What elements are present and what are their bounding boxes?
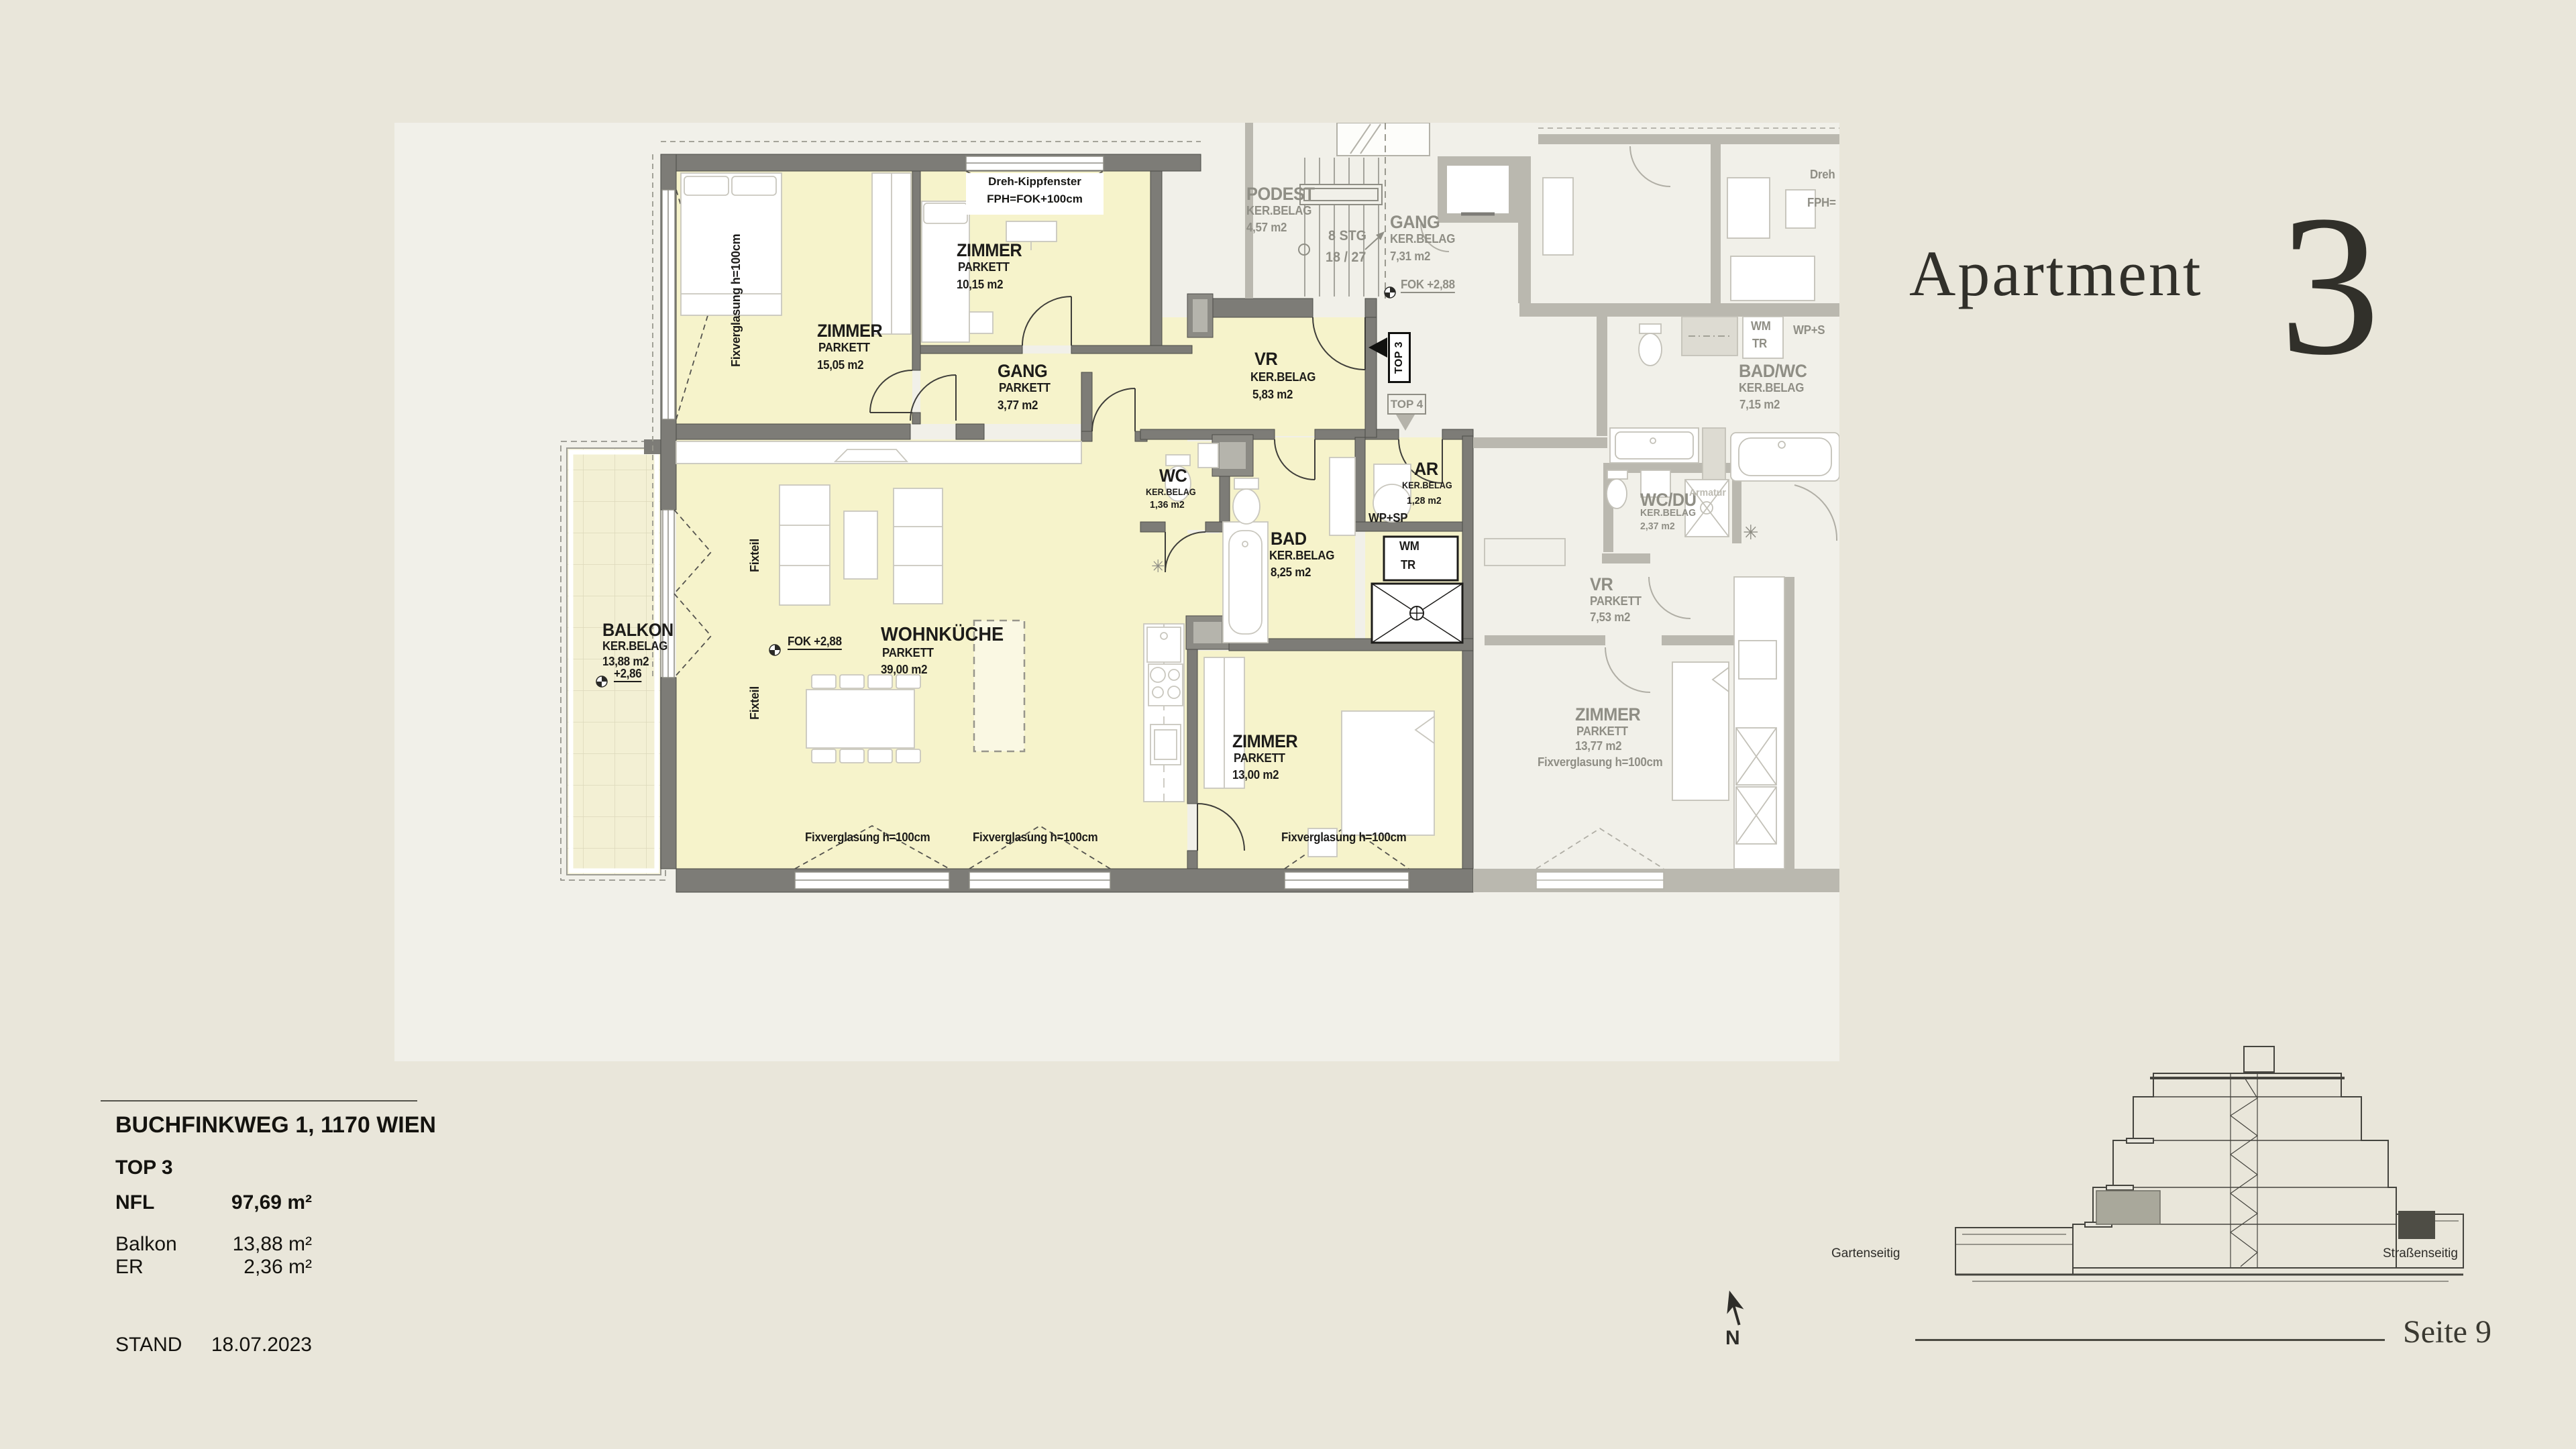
page: ZIMMER PARKETT 15,05 m2 ZIMMER PARKETT 1… [0, 0, 2576, 1449]
fixverglasung-label-vertical: Fixverglasung h=100cm [730, 233, 743, 367]
info-panel-rule [101, 1100, 417, 1102]
compass: N [1712, 1289, 1759, 1353]
room-gang2-area: 7,31 m2 [1390, 250, 1430, 263]
room-badwc-floor: KER.BELAG [1739, 382, 1804, 394]
top3-arrow-icon [1367, 336, 1389, 359]
label-tr-top4: TR [1752, 337, 1767, 350]
highlighted-floor [2096, 1191, 2160, 1224]
label-wp-sp: WP+SP [1368, 512, 1407, 525]
fixverglasung-label-gray: Fixverglasung h=100cm [1538, 756, 1662, 769]
room-zimmer1-area: 15,05 m2 [817, 359, 863, 372]
fixverglasung-label-1: Fixverglasung h=100cm [805, 831, 930, 844]
balkon-row-label: Balkon [115, 1233, 177, 1256]
vent-icon-2: ✳ [1151, 557, 1165, 576]
unit-label: TOP 3 [115, 1157, 173, 1179]
room-bad-area: 8,25 m2 [1271, 566, 1311, 579]
stairs-riser-label: 18 / 27 [1326, 250, 1366, 265]
label-wp-s: WP+S [1793, 324, 1825, 337]
room-badwc-area: 7,15 m2 [1739, 398, 1780, 411]
room-wohnkueche-name: WOHNKÜCHE [881, 625, 1004, 645]
fok-label-top3: FOK +2,88 [788, 635, 842, 650]
room-wc-area: 1,36 m2 [1150, 500, 1185, 511]
balkon-row-value: 13,88 m² [201, 1233, 312, 1256]
building-section: Gartenseitig Straßenseitig [1811, 1043, 2576, 1311]
room-vr-area: 5,83 m2 [1252, 388, 1293, 401]
room-gang2-name: GANG [1390, 213, 1440, 231]
footer-rule [1915, 1339, 2385, 1341]
top3-entry-marker: TOP 3 [1388, 332, 1411, 383]
cut-label-dreh: Dreh [1810, 168, 1835, 181]
room-zimmer4-area: 13,77 m2 [1575, 740, 1621, 753]
room-vr-name: VR [1254, 350, 1277, 368]
address-label: BUCHFINKWEG 1, 1170 WIEN [115, 1112, 436, 1138]
room-vr-floor: KER.BELAG [1250, 371, 1316, 384]
fixverglasung-label-3: Fixverglasung h=100cm [1281, 831, 1406, 844]
room-zimmer3-name: ZIMMER [1232, 732, 1297, 751]
room-bad-floor: KER.BELAG [1269, 549, 1334, 562]
label-tr-top3: TR [1401, 559, 1415, 572]
stand-label: STAND [115, 1334, 182, 1356]
room-wc-floor: KER.BELAG [1146, 488, 1196, 497]
room-zimmer2-area: 10,15 m2 [957, 278, 1003, 291]
fixteil-label-1: Fixteil [749, 498, 761, 572]
room-podest-area: 4,57 m2 [1246, 221, 1287, 234]
window-note-line2: FPH=FOK+100cm [987, 193, 1083, 205]
page-number: Seite 9 [2403, 1313, 2491, 1350]
room-zimmer2-name: ZIMMER [957, 241, 1022, 260]
street-side-label: Straßenseitig [2383, 1246, 2458, 1261]
floorplan-panel: ZIMMER PARKETT 15,05 m2 ZIMMER PARKETT 1… [394, 123, 1839, 1061]
fixteil-label-2: Fixteil [749, 646, 761, 720]
fixverglasung-label-2: Fixverglasung h=100cm [973, 831, 1097, 844]
apartment-number: 3 [2279, 184, 2380, 386]
fok-label-common: FOK +2,88 [1401, 278, 1455, 293]
label-armatur: Armatur [1689, 488, 1726, 498]
room-balkon-name: BALKON [602, 621, 674, 639]
room-zimmer1-name: ZIMMER [817, 321, 882, 340]
window-note-line1: Dreh-Kippfenster [988, 175, 1081, 188]
room-zimmer2-floor: PARKETT [958, 261, 1010, 274]
room-vr2-name: VR [1590, 575, 1613, 594]
er-row-value: 2,36 m² [201, 1256, 312, 1279]
room-podest-floor: KER.BELAG [1246, 205, 1311, 217]
north-label: N [1725, 1327, 1740, 1350]
north-arrow-icon [1712, 1289, 1759, 1330]
floorplan-drawing [394, 123, 1839, 1061]
room-wcdu-area: 2,37 m2 [1640, 521, 1675, 532]
room-zimmer4-floor: PARKETT [1576, 725, 1628, 738]
room-wohnkueche-floor: PARKETT [882, 647, 934, 659]
room-bad-name: BAD [1271, 529, 1307, 548]
top4-arrow-icon [1395, 414, 1415, 431]
elevator-cab [1446, 165, 1509, 214]
staircase [1299, 123, 1430, 299]
page-title: Apartment [1909, 236, 2203, 311]
room-balkon-floor: KER.BELAG [602, 640, 667, 653]
room-wcdu-name: WC/DU [1640, 490, 1697, 509]
window-note-box: Dreh-Kippfenster FPH=FOK+100cm [966, 173, 1104, 215]
hatched-block [2398, 1211, 2435, 1239]
room-ar-name: AR [1414, 460, 1438, 478]
room-zimmer3-floor: PARKETT [1234, 752, 1285, 765]
room-vr2-floor: PARKETT [1590, 595, 1642, 608]
room-ar-area: 1,28 m2 [1407, 496, 1442, 506]
nfl-label: NFL [115, 1191, 154, 1214]
room-wohnkueche-area: 39,00 m2 [881, 663, 927, 676]
room-wcdu-floor: KER.BELAG [1640, 508, 1696, 519]
room-gang2-floor: KER.BELAG [1390, 233, 1455, 246]
top4-marker: TOP 4 [1387, 394, 1426, 415]
label-wm-top3: WM [1399, 540, 1419, 553]
nfl-value: 97,69 m² [201, 1191, 312, 1214]
label-wm-top4: WM [1751, 320, 1771, 333]
er-row-label: ER [115, 1256, 144, 1279]
room-wc-name: WC [1159, 466, 1187, 485]
vent-icon: ✳ [1743, 523, 1759, 543]
room-gang-floor: PARKETT [999, 382, 1051, 394]
stand-value: 18.07.2023 [201, 1334, 312, 1356]
room-vr2-area: 7,53 m2 [1590, 611, 1630, 624]
room-balkon-area: 13,88 m2 [602, 655, 649, 668]
garden-side-label: Gartenseitig [1831, 1246, 1900, 1261]
room-badwc-name: BAD/WC [1739, 362, 1807, 380]
room-zimmer1-floor: PARKETT [818, 341, 870, 354]
stairs-count-label: 8 STG [1328, 229, 1366, 244]
cut-label-fph: FPH= [1807, 197, 1836, 209]
room-zimmer4-name: ZIMMER [1575, 705, 1640, 724]
room-podest-name: PODEST [1246, 184, 1315, 203]
balkon-level-label: +2,86 [614, 667, 641, 682]
building-section-drawing [1811, 1043, 2576, 1311]
room-gang-area: 3,77 m2 [998, 399, 1038, 412]
room-ar-floor: KER.BELAG [1402, 481, 1452, 490]
room-gang-name: GANG [998, 362, 1047, 380]
room-zimmer3-area: 13,00 m2 [1232, 769, 1279, 782]
